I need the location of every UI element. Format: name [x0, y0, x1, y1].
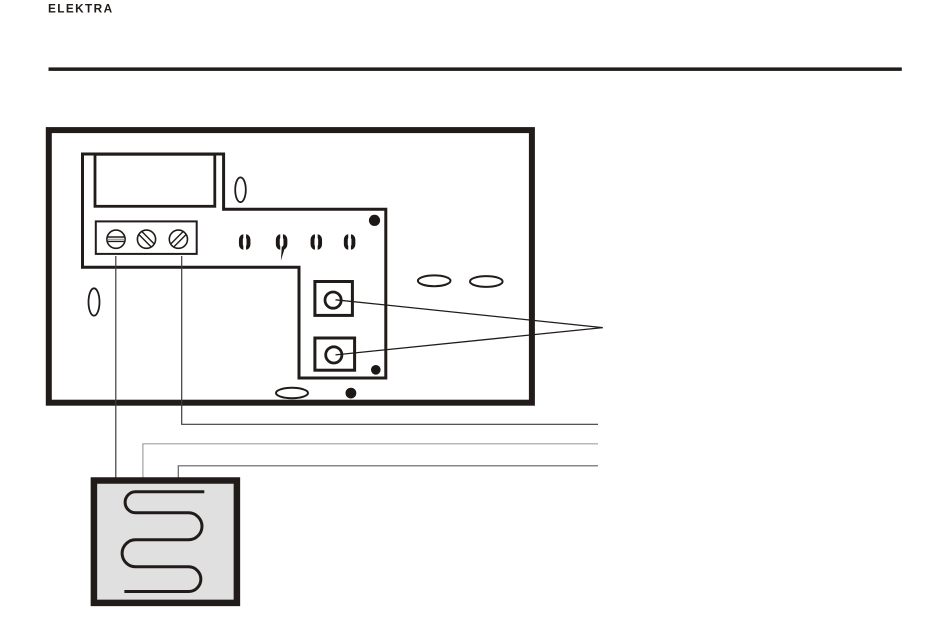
- svg-text:ELEKTRA: ELEKTRA: [48, 2, 114, 16]
